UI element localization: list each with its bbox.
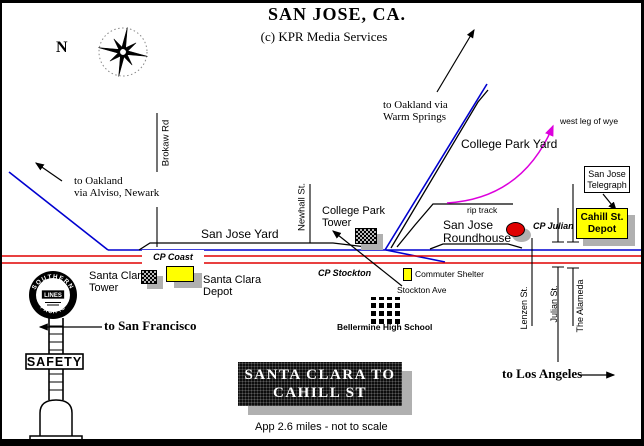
santa-clara-depot-box <box>166 266 194 282</box>
map-title-banner: SANTA CLARA TO CAHILL ST <box>238 362 402 406</box>
college-park-yard-label: College Park Yard <box>461 138 557 151</box>
cp-coast-label: CP Coast <box>142 250 204 264</box>
double-track-red <box>2 256 641 263</box>
compass-north-label: N <box>56 39 68 57</box>
commuter-shelter-box <box>403 268 412 281</box>
san-jose-yard-track <box>139 243 383 250</box>
san-jose-roundhouse-label: San Jose Roundhouse <box>443 219 511 246</box>
college-park-tower-box <box>355 228 377 244</box>
frame-left <box>0 0 2 446</box>
santa-clara-tower-box <box>141 270 157 284</box>
page-subtitle: (c) KPR Media Services <box>234 29 414 45</box>
to-oakland-alviso-arrow <box>36 163 62 181</box>
to-san-francisco-label: to San Francisco <box>104 319 196 334</box>
west-leg-of-wye-label: west leg of wye <box>560 117 618 127</box>
to-oakland-alviso-label: to Oakland via Alviso, Newark <box>74 175 159 200</box>
newhall-st-label: Newhall St. <box>297 183 308 231</box>
safety-banner-text: SAFETY <box>27 355 82 369</box>
sp-safety-totem: SOUTHERN PACIFIC LINES SAFETY <box>26 271 88 445</box>
college-park-tower-label: College Park Tower <box>322 205 385 230</box>
commuter-shelter-label: Commuter Shelter <box>415 270 484 280</box>
sp-herald-icon: SOUTHERN PACIFIC LINES <box>29 271 77 319</box>
san-jose-rail-map: SOUTHERN PACIFIC LINES SAFETY SAN JOSE, … <box>0 0 644 446</box>
san-jose-yard-label: San Jose Yard <box>201 228 279 241</box>
the-alameda-label: The Alameda <box>575 279 585 332</box>
cahill-st-depot-box: Cahill St. Depot <box>576 208 628 239</box>
frame-top <box>0 0 644 3</box>
frame-bottom <box>0 439 644 446</box>
cp-stockton-label: CP Stockton <box>318 268 371 278</box>
lenzen-st-label: Lenzen St. <box>519 286 529 329</box>
cp-julian-label: CP Julian <box>533 221 574 231</box>
san-jose-telegraph-box: San Jose Telegraph <box>584 166 630 193</box>
page-title: SAN JOSE, CA. <box>247 4 427 25</box>
roundhouse-marker <box>506 222 525 237</box>
herald-lines-text: LINES <box>44 293 62 299</box>
compass-rose-icon <box>94 23 152 81</box>
bellarmine-label: Bellermine High School <box>337 323 432 333</box>
to-los-angeles-label: to Los Angeles <box>502 367 582 382</box>
stockton-ave-label: Stockton Ave <box>397 286 446 296</box>
to-oakland-warm-springs-arrow <box>437 30 474 92</box>
totem-pedestal <box>40 400 72 437</box>
to-oakland-warm-springs-label: to Oakland via Warm Springs <box>383 99 448 124</box>
brokaw-rd-label: Brokaw Rd <box>161 120 172 166</box>
bellarmine-building <box>371 297 402 324</box>
julian-st-label: Julian St. <box>549 285 559 322</box>
scale-note: App 2.6 miles - not to scale <box>255 421 385 433</box>
rip-track-label: rip track <box>467 206 497 216</box>
main-line-blue <box>9 84 641 262</box>
santa-clara-tower-label: Santa Clara Tower <box>89 270 147 295</box>
santa-clara-depot-label: Santa Clara Depot <box>203 274 261 299</box>
